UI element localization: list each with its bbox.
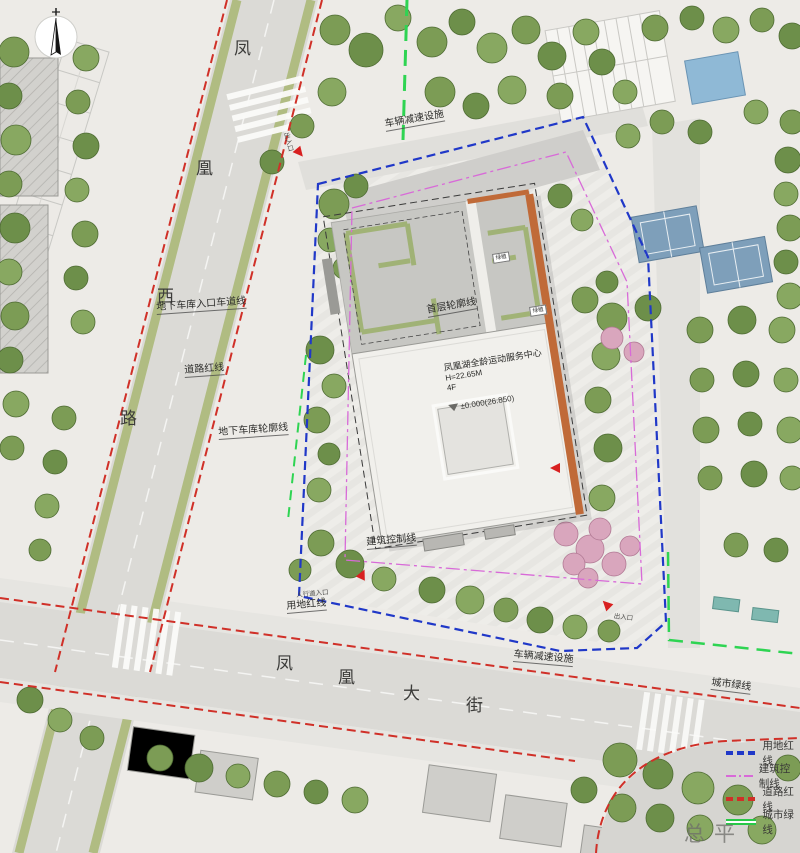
north-arrow-icon [32, 8, 80, 60]
site-plan: 凤 凰 西 路 凤 凰 大 街 车辆减速设施 地下车库入口车道线 道路红线 地下… [0, 0, 800, 853]
title-text: 总平面图 [684, 818, 772, 853]
bike-racks-e [712, 597, 780, 623]
road-char-west: 路 [120, 410, 137, 427]
road-char-west: 凤 [234, 40, 251, 57]
road-char-south: 街 [466, 697, 483, 714]
legend-line-site-red-icon [726, 751, 756, 755]
legend-line-building-control-icon [726, 775, 753, 777]
tennis-courts [631, 195, 772, 304]
road-char-south: 凰 [338, 669, 355, 686]
drawing-title: 总平面图 1:500 [684, 818, 800, 853]
elevation-symbol-icon [448, 403, 459, 411]
legend-line-road-red-icon [726, 797, 756, 801]
road-char-south: 凤 [276, 655, 293, 672]
road-char-west: 凰 [196, 160, 213, 177]
road-char-south: 大 [403, 685, 420, 702]
swimming-pool [685, 52, 746, 105]
entrance-marker-icon [293, 146, 307, 160]
